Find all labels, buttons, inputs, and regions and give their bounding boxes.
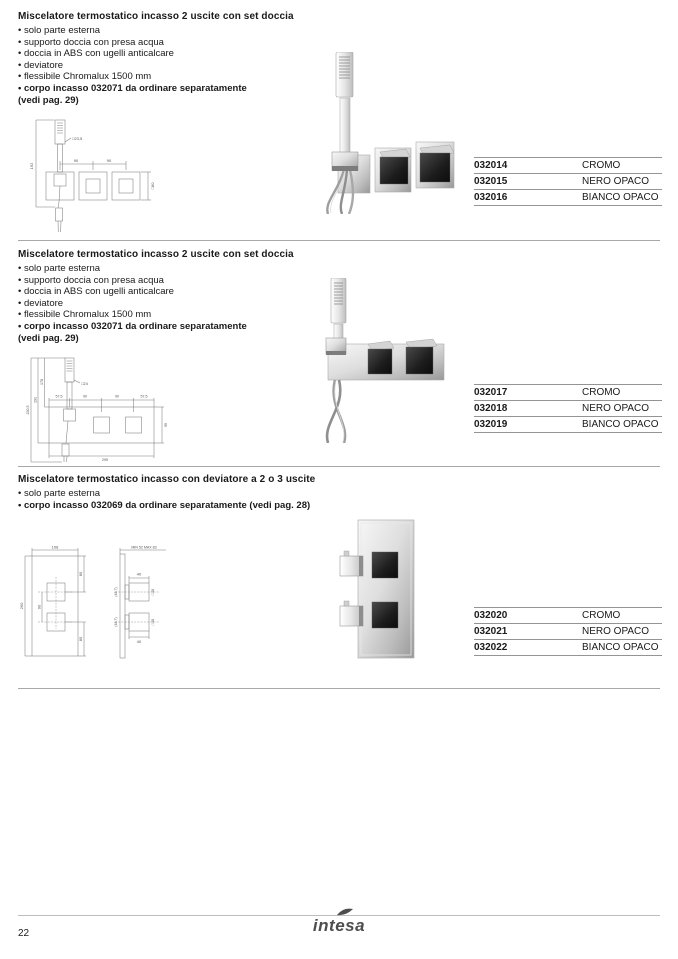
feature-bullet: doccia in ABS con ugelli anticalcare: [18, 286, 247, 298]
product-code: 032019: [474, 419, 582, 430]
dimension-label: 40: [137, 639, 142, 644]
feature-bullet: solo parte esterna: [18, 488, 310, 500]
product-code: 032018: [474, 403, 582, 414]
dimension-label: 178: [40, 379, 44, 385]
page-title: Miscelatore termostatico incasso 2 uscit…: [18, 11, 294, 22]
product-table: 032020 CROMO 032021 NERO OPACO 032022 BI…: [474, 607, 662, 656]
page-title: Miscelatore termostatico incasso con dev…: [18, 474, 315, 485]
technical-drawing: 192 □23,5 90 90 □80: [28, 112, 168, 237]
product-code: 032020: [474, 610, 582, 621]
dimension-label: 295: [102, 458, 108, 462]
dimension-label: 40: [137, 572, 142, 577]
dimension-label: 230,5: [26, 406, 30, 415]
feature-bullet: deviatore: [18, 298, 247, 310]
product-finish: CROMO: [582, 610, 662, 621]
product-photo: [330, 514, 442, 664]
product-code: 032022: [474, 642, 582, 653]
product-finish: CROMO: [582, 387, 662, 398]
dimension-label: MIN 52 MAX 83: [131, 546, 156, 550]
brand-name: intesa: [313, 916, 365, 935]
dimension-label: 90: [37, 604, 42, 609]
product-finish: NERO OPACO: [582, 403, 662, 414]
dimension-label: 80: [78, 571, 83, 576]
product-code: 032017: [474, 387, 582, 398]
dimension-label: 260: [20, 602, 24, 609]
feature-bullet: supporto doccia con presa acqua: [18, 275, 247, 287]
catalog-page: Miscelatore termostatico incasso 2 uscit…: [0, 0, 678, 959]
feature-bullet: supporto doccia con presa acqua: [18, 37, 247, 49]
reference-note: (vedi pag. 29): [18, 333, 247, 345]
product-finish: BIANCO OPACO: [582, 192, 662, 203]
product-photo: [298, 52, 460, 214]
technical-drawing: □24 230,5 191 178 57,5 90 90 57,5 95 295: [25, 352, 175, 467]
product-code: 032016: [474, 192, 582, 203]
section-divider: [18, 688, 660, 689]
feature-bullet: deviatore: [18, 60, 247, 72]
dimension-label: 90: [74, 158, 79, 163]
dimension-label: □48: [151, 589, 155, 595]
dimension-label: 108: [52, 545, 59, 550]
dimension-label: □24: [81, 381, 89, 386]
feature-bullet: flessibile Chromalux 1500 mm: [18, 309, 247, 321]
product-finish: NERO OPACO: [582, 176, 662, 187]
dimension-label: 90: [107, 158, 112, 163]
table-row: 032022 BIANCO OPACO: [474, 639, 662, 655]
table-row: 032014 CROMO: [474, 157, 662, 173]
section-divider: [18, 466, 660, 467]
dimension-label: 95: [164, 423, 168, 427]
dimension-label: 191: [34, 397, 38, 403]
feature-bullet: corpo incasso 032071 da ordinare separat…: [18, 83, 247, 95]
product-finish: CROMO: [582, 160, 662, 171]
feature-list: solo parte esterna corpo incasso 032069 …: [18, 488, 310, 511]
dimension-label: 90: [83, 395, 87, 399]
feature-bullet: solo parte esterna: [18, 25, 247, 37]
table-row: 032021 NERO OPACO: [474, 623, 662, 639]
leaf-icon: [335, 907, 355, 917]
product-finish: BIANCO OPACO: [582, 419, 662, 430]
dimension-label: □48: [151, 619, 155, 625]
dimension-label: □80: [150, 182, 155, 190]
product-finish: BIANCO OPACO: [582, 642, 662, 653]
dimension-label: 57,5: [56, 395, 63, 399]
page-title: Miscelatore termostatico incasso 2 uscit…: [18, 249, 294, 260]
product-code: 032014: [474, 160, 582, 171]
product-finish: NERO OPACO: [582, 626, 662, 637]
table-row: 032015 NERO OPACO: [474, 173, 662, 189]
dimension-label: 80: [78, 636, 83, 641]
section-divider: [18, 240, 660, 241]
table-row: 032016 BIANCO OPACO: [474, 189, 662, 205]
table-row: 032019 BIANCO OPACO: [474, 416, 662, 432]
feature-bullet: corpo incasso 032071 da ordinare separat…: [18, 321, 247, 333]
feature-list: solo parte esterna supporto doccia con p…: [18, 263, 247, 344]
technical-drawing: 108 260 80 90 80 MIN 52 MAX 83 40 (48,7)…: [20, 542, 188, 670]
feature-bullet: doccia in ABS con ugelli anticalcare: [18, 48, 247, 60]
feature-list: solo parte esterna supporto doccia con p…: [18, 25, 247, 106]
table-row: 032018 NERO OPACO: [474, 400, 662, 416]
product-photo: [298, 278, 460, 443]
feature-bullet: solo parte esterna: [18, 263, 247, 275]
dimension-label: 57,5: [141, 395, 148, 399]
dimension-label: □23,5: [72, 136, 83, 141]
table-row: 032017 CROMO: [474, 384, 662, 400]
product-table: 032014 CROMO 032015 NERO OPACO 032016 BI…: [474, 157, 662, 206]
dimension-label: 90: [115, 395, 119, 399]
dimension-label: 192: [29, 162, 34, 169]
brand-logo: intesa: [0, 916, 678, 936]
feature-bullet: corpo incasso 032069 da ordinare separat…: [18, 500, 310, 512]
dimension-label: (48,7): [114, 587, 118, 596]
feature-bullet: flessibile Chromalux 1500 mm: [18, 71, 247, 83]
product-table: 032017 CROMO 032018 NERO OPACO 032019 BI…: [474, 384, 662, 433]
table-row: 032020 CROMO: [474, 607, 662, 623]
dimension-label: (48,7): [114, 617, 118, 626]
product-code: 032021: [474, 626, 582, 637]
product-code: 032015: [474, 176, 582, 187]
reference-note: (vedi pag. 29): [18, 95, 247, 107]
